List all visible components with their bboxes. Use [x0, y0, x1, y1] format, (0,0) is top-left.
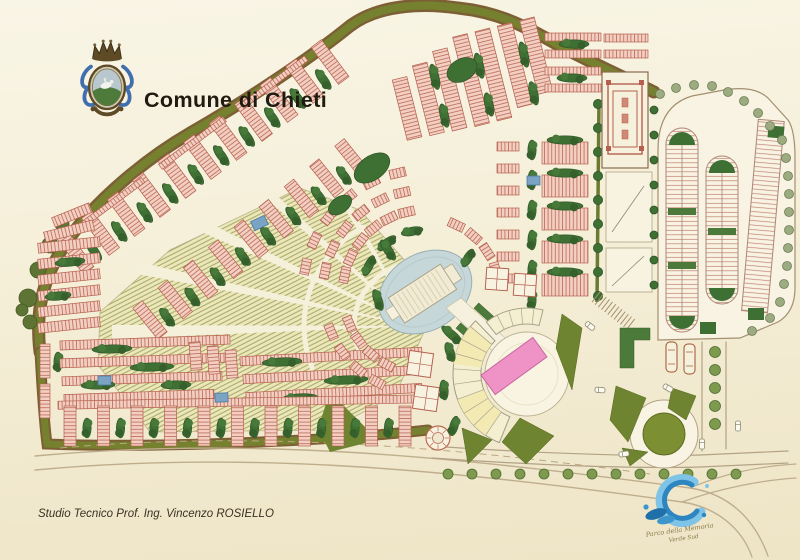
tree-icon [593, 267, 602, 276]
hedge-blob [115, 429, 123, 437]
hedge-blob [527, 241, 535, 249]
burial-block [465, 228, 483, 245]
hedge-blob [84, 419, 92, 427]
tree-icon [650, 281, 658, 289]
hedge-blob [570, 170, 578, 178]
burial-block [545, 84, 601, 92]
hedge-blob [527, 151, 535, 159]
hedge-blob [149, 429, 157, 437]
car-body [735, 421, 740, 431]
hedge-blob [118, 419, 126, 427]
burial-block [98, 406, 110, 446]
hedge-blob [383, 429, 391, 437]
burial-block [380, 211, 398, 226]
tree-icon [593, 147, 602, 156]
burial-block [604, 50, 648, 58]
monument-core [433, 433, 444, 444]
tree-icon [785, 208, 794, 217]
car-icon [619, 451, 630, 458]
tree-icon [539, 469, 549, 479]
tree-icon [443, 469, 453, 479]
tree-icon [650, 181, 658, 189]
tree-icon [650, 131, 658, 139]
hedge-blob [552, 135, 560, 143]
tree-icon [467, 469, 477, 479]
burial-block [40, 384, 50, 418]
hedge [527, 200, 538, 220]
tree-icon [724, 88, 733, 97]
hedge-blob [249, 429, 257, 437]
burial-block [497, 230, 519, 239]
hedge-blob [216, 429, 224, 437]
tree-icon [784, 172, 793, 181]
corner-pavilion [639, 146, 644, 151]
burial-block [479, 243, 495, 261]
tree-icon [650, 106, 658, 114]
tree-icon [754, 109, 763, 118]
corner-pavilion [639, 80, 644, 85]
tree-icon [563, 469, 573, 479]
hedge-blob [527, 211, 535, 219]
burial-block [64, 406, 76, 446]
burial-block [165, 406, 177, 446]
north-columns [386, 17, 557, 143]
car-body [584, 321, 595, 331]
burial-block [497, 252, 519, 261]
burial-block [497, 164, 519, 173]
burial-block [542, 208, 588, 230]
tree-icon [611, 469, 621, 479]
hedge-blob [53, 363, 61, 371]
tree-icon [650, 156, 658, 164]
car-icon [662, 383, 673, 393]
car-icon [584, 321, 595, 331]
tree-icon [766, 314, 775, 323]
burial-block [198, 406, 210, 446]
burial-block [399, 406, 411, 446]
tree-icon [784, 244, 793, 253]
tree-icon [656, 90, 665, 99]
hedge-blob [350, 429, 358, 437]
tree-icon [690, 81, 699, 90]
tree-icon [780, 280, 789, 289]
tree-icon [650, 206, 658, 214]
hedge-blob [218, 419, 226, 427]
hedge-blob [529, 231, 537, 239]
chapel-square [412, 384, 439, 411]
hedge-blob [570, 203, 578, 211]
tree-icon [23, 315, 37, 329]
car-body [595, 387, 605, 393]
tree-icon [710, 383, 721, 394]
car-body [619, 451, 630, 458]
burial-block [393, 186, 411, 198]
hedge-blob [576, 75, 584, 83]
crown-icon [92, 40, 122, 62]
droplet [705, 484, 709, 488]
burial-block [497, 186, 519, 195]
hedge-blob [552, 267, 560, 275]
pool [215, 393, 228, 402]
tree-icon [593, 171, 602, 180]
burial-block [545, 50, 601, 58]
hedge-blob [529, 261, 537, 269]
crescent-band [486, 308, 543, 335]
hedge-blob [529, 141, 537, 149]
tree-icon [782, 154, 791, 163]
hedge-blob [151, 419, 159, 427]
tree-icon [672, 84, 681, 93]
hedge-blob [185, 419, 193, 427]
hedge-blob [570, 236, 578, 244]
car-body [699, 439, 704, 449]
hedge-blob [570, 137, 578, 145]
tree-icon [593, 123, 602, 132]
aisle-green [708, 228, 736, 235]
hedge-blob [578, 41, 586, 49]
tree-icon [776, 298, 785, 307]
burial-block [225, 350, 238, 379]
burial-block [542, 175, 588, 197]
tree-icon [593, 219, 602, 228]
tree-icon [766, 122, 775, 131]
car-icon [699, 439, 704, 449]
tree-icon [650, 231, 658, 239]
site-road [432, 458, 788, 467]
droplet [643, 504, 648, 509]
hedge-blob [386, 419, 394, 427]
tree-icon [593, 99, 602, 108]
hedge [438, 380, 451, 401]
tree-icon [593, 243, 602, 252]
burial-block [542, 274, 588, 296]
droplet [702, 513, 706, 517]
tree-icon [731, 469, 741, 479]
hedge [527, 230, 538, 250]
burial-block [366, 406, 378, 446]
corner-pavilion [606, 146, 611, 151]
tree-icon [778, 136, 787, 145]
burial-block [189, 342, 202, 371]
chapel-square [406, 350, 433, 377]
hedge-blob [561, 73, 569, 81]
crest-oval-scene [89, 66, 125, 109]
hedge-blob [552, 201, 560, 209]
car-icon [735, 421, 740, 431]
site-plan-page: Comune di Chieti Studio Tecnico Prof. In… [0, 0, 800, 560]
hedge-blob [319, 419, 327, 427]
tree-icon [710, 419, 721, 430]
chapel-square [513, 273, 536, 296]
tree-icon [783, 262, 792, 271]
hedge-blob [552, 234, 560, 242]
designer-credit: Studio Tecnico Prof. Ing. Vincenzo ROSIE… [38, 508, 274, 520]
swirl-inner [665, 482, 697, 518]
burial-block [497, 142, 519, 151]
pool [527, 176, 540, 185]
court-element [622, 98, 628, 107]
chieti-coat-of-arms-icon [74, 26, 140, 126]
tree-icon [710, 365, 721, 376]
car-icon [595, 387, 605, 393]
roundabout-island [643, 413, 685, 455]
burial-block [40, 344, 50, 378]
tree-icon [785, 226, 794, 235]
burial-block [398, 206, 416, 218]
hedge-blob [570, 269, 578, 277]
burial-block [542, 142, 588, 164]
hedge-blob [285, 419, 293, 427]
hedge-blob [252, 419, 260, 427]
burial-block [542, 241, 588, 263]
burial-block [371, 193, 389, 208]
burial-block [497, 208, 519, 217]
page-title: Comune di Chieti [144, 88, 327, 113]
parking-green [700, 322, 716, 334]
burial-block [265, 406, 277, 446]
chapel-square [485, 267, 508, 290]
hedge-blob [283, 429, 291, 437]
tree-icon [710, 401, 721, 412]
tree-icon [16, 304, 28, 316]
hedge [400, 224, 424, 239]
tree-icon [593, 195, 602, 204]
burial-block [604, 34, 648, 42]
bus-icon [684, 344, 695, 374]
court-element [622, 114, 628, 123]
tree-icon [785, 190, 794, 199]
aisle-green [668, 208, 696, 215]
burial-block [299, 406, 311, 446]
tree-icon [708, 82, 717, 91]
burial-block [232, 406, 244, 446]
burial-block [131, 406, 143, 446]
burial-block [332, 406, 344, 446]
bus-island [620, 328, 650, 368]
hedge-blob [82, 429, 90, 437]
corner-pavilion [606, 80, 611, 85]
tree-icon [491, 469, 501, 479]
logo-text-line2: Verde Sud [668, 534, 699, 544]
hedge [115, 418, 126, 438]
hedge-blob [529, 201, 537, 209]
hedge [527, 140, 538, 160]
tree-icon [710, 347, 721, 358]
burial-block [447, 217, 465, 232]
water-swirl-logo-icon: Parco della Memoria Verde Sud [632, 470, 732, 550]
hedge-blob [182, 429, 190, 437]
hedge-blob [352, 419, 360, 427]
hedge-blob [316, 429, 324, 437]
burial-block [389, 167, 407, 179]
tree-icon [587, 469, 597, 479]
tree-icon [740, 97, 749, 106]
tree-icon [515, 469, 525, 479]
tree-icon [650, 256, 658, 264]
burial-block [207, 346, 220, 375]
tree-icon [748, 327, 757, 336]
bus-icon [666, 342, 677, 372]
car-body [662, 383, 673, 393]
parking-green [748, 308, 764, 320]
hedge-blob [563, 39, 571, 47]
burial-block [38, 317, 101, 333]
hedge-blob [552, 168, 560, 176]
hedge [82, 418, 93, 438]
court-element [622, 130, 628, 139]
pool [98, 376, 111, 385]
aisle-green [668, 262, 696, 269]
